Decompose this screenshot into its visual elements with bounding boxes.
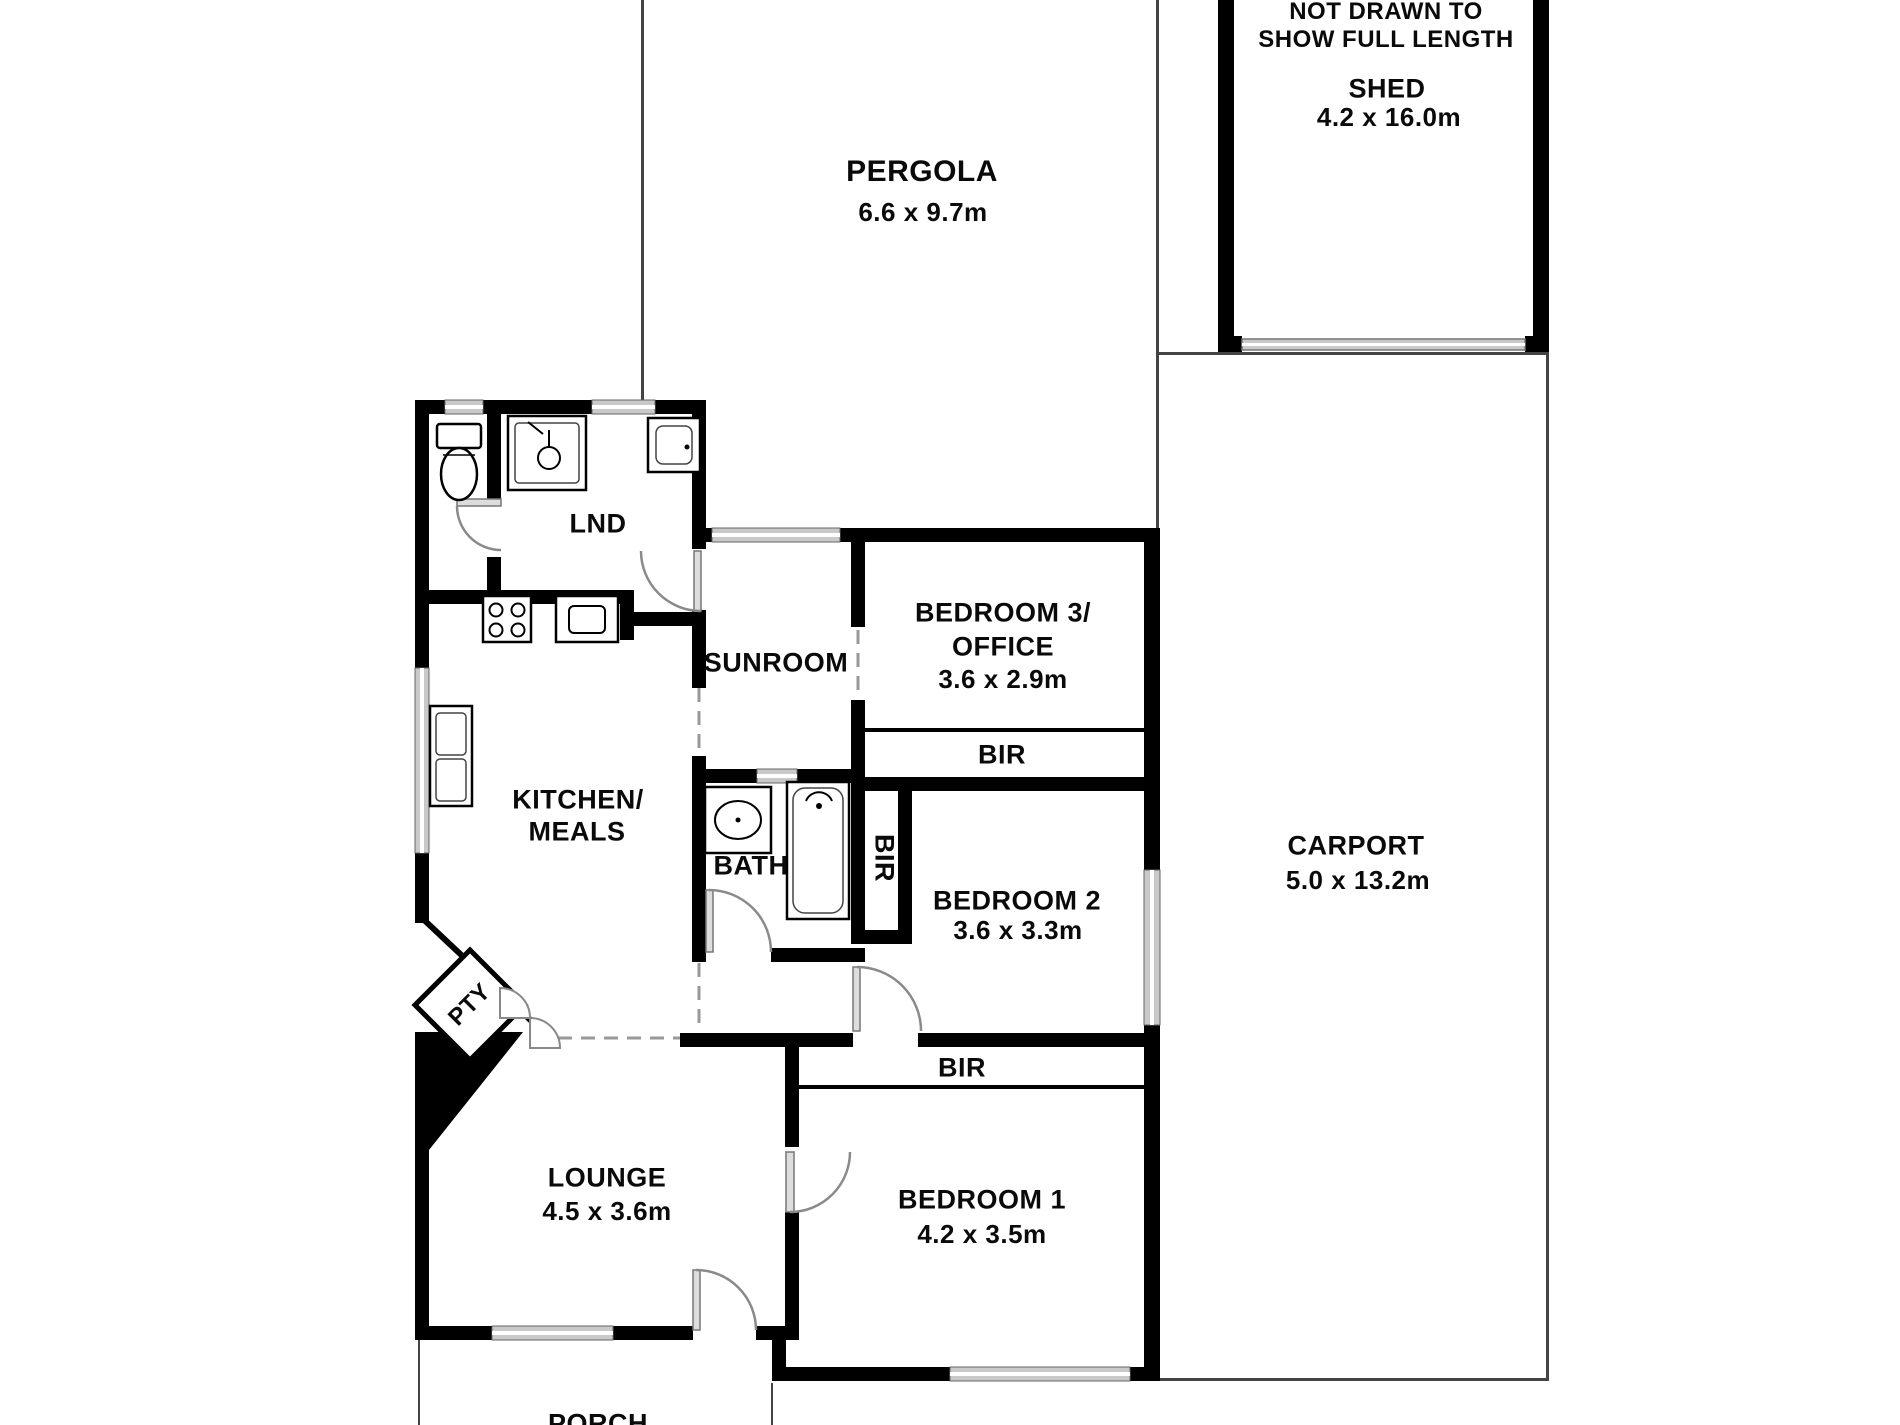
bedroom3-label-line1: BEDROOM 3/ [915, 600, 1091, 627]
bath-door-swing [706, 890, 771, 952]
shed-right-wall [1533, 0, 1549, 352]
bedroom1-dims: 4.2 x 3.5m [917, 1221, 1046, 1247]
lounge-label: LOUNGE [548, 1165, 667, 1192]
sunroom-label: SUNROOM [704, 650, 849, 677]
bir-bedroom2-label: BIR [871, 834, 898, 882]
kitchen-label-line1: KITCHEN/ [512, 787, 644, 814]
laundry-door-swing [641, 551, 701, 611]
bir-bedroom3-label: BIR [978, 742, 1026, 769]
window-wc-top [445, 400, 483, 414]
laundry-label: LND [570, 511, 627, 538]
pergola-dims: 6.6 x 9.7m [858, 199, 987, 225]
shed-note-line2: SHOW FULL LENGTH [1258, 28, 1514, 52]
carport-bottom-line [1159, 1378, 1549, 1381]
carport-label: CARPORT [1288, 833, 1425, 860]
shed-note-line1: NOT DRAWN TO [1289, 0, 1483, 24]
window-sunroom-top [712, 528, 840, 542]
toilet-icon [437, 424, 481, 500]
shed-dims: 4.2 x 16.0m [1317, 104, 1461, 130]
porch-left-line [418, 1340, 420, 1425]
bedroom1-door-swing [786, 1152, 850, 1212]
bath-basin-icon [705, 787, 771, 853]
window-kitchen-left [415, 668, 429, 853]
bedroom3-label-line2: OFFICE [952, 634, 1054, 661]
porch-right-line [771, 1383, 773, 1425]
bedroom2-label: BEDROOM 2 [933, 888, 1101, 915]
wc-door-swing [457, 499, 501, 550]
pergola-label: PERGOLA [846, 157, 998, 187]
window-lounge-bottom [492, 1326, 613, 1340]
floorplan: PERGOLA 6.6 x 9.7m NOT DRAWN TO SHOW FUL… [0, 0, 1900, 1425]
carport-top-line [1159, 352, 1549, 355]
bir-bedroom1-label: BIR [938, 1055, 986, 1082]
laundry-sink-icon [648, 418, 700, 472]
kitchen-sink-icon [430, 706, 472, 806]
bedroom2-dims: 3.6 x 3.3m [953, 917, 1082, 943]
shed-sliding-door-icon [1242, 339, 1525, 350]
laundry-trough-icon [508, 416, 586, 490]
carport-right-line [1546, 352, 1549, 1381]
lounge-dims: 4.5 x 3.6m [542, 1198, 671, 1224]
shed-label: SHED [1348, 76, 1425, 103]
shed-left-wall [1218, 0, 1234, 352]
pergola-boundary-line [641, 0, 644, 400]
shed-corner-block-left [1218, 336, 1242, 352]
bedroom1-label: BEDROOM 1 [898, 1187, 1066, 1214]
carport-left-line [1156, 0, 1159, 528]
window-bedroom2-right [1144, 870, 1160, 1025]
shower-icon [787, 782, 849, 919]
carport-dims: 5.0 x 13.2m [1286, 867, 1430, 893]
bir-bedroom3-front-line [865, 728, 1144, 732]
shed-corner-block-right [1525, 336, 1549, 352]
window-lnd-top [592, 400, 655, 414]
bedroom2-door-swing [853, 967, 921, 1031]
bir-bedroom1-front-line [799, 1085, 1144, 1089]
bath-label: BATH [714, 853, 789, 880]
cooktop-icon [483, 596, 531, 642]
kitchen-label-line2: MEALS [529, 819, 626, 846]
front-door-swing [693, 1270, 756, 1330]
window-bedroom1-bottom [950, 1367, 1130, 1381]
oven-icon [556, 596, 618, 642]
bedroom3-dims: 3.6 x 2.9m [938, 666, 1067, 692]
porch-label: PORCH [548, 1411, 648, 1425]
